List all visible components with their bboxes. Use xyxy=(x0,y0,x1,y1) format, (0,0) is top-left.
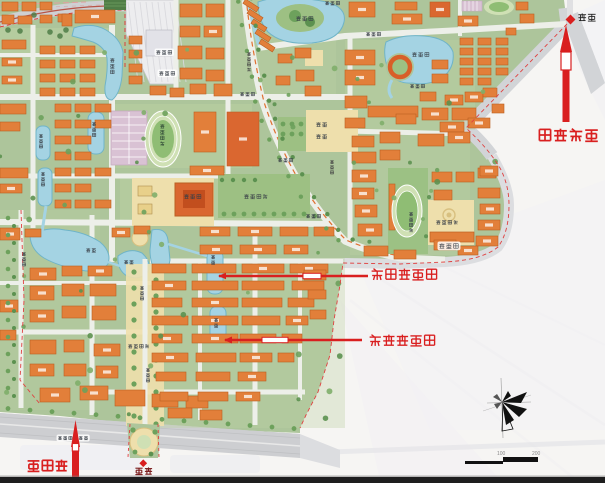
svg-text:100: 100 xyxy=(497,451,506,457)
svg-text:200: 200 xyxy=(532,451,541,457)
